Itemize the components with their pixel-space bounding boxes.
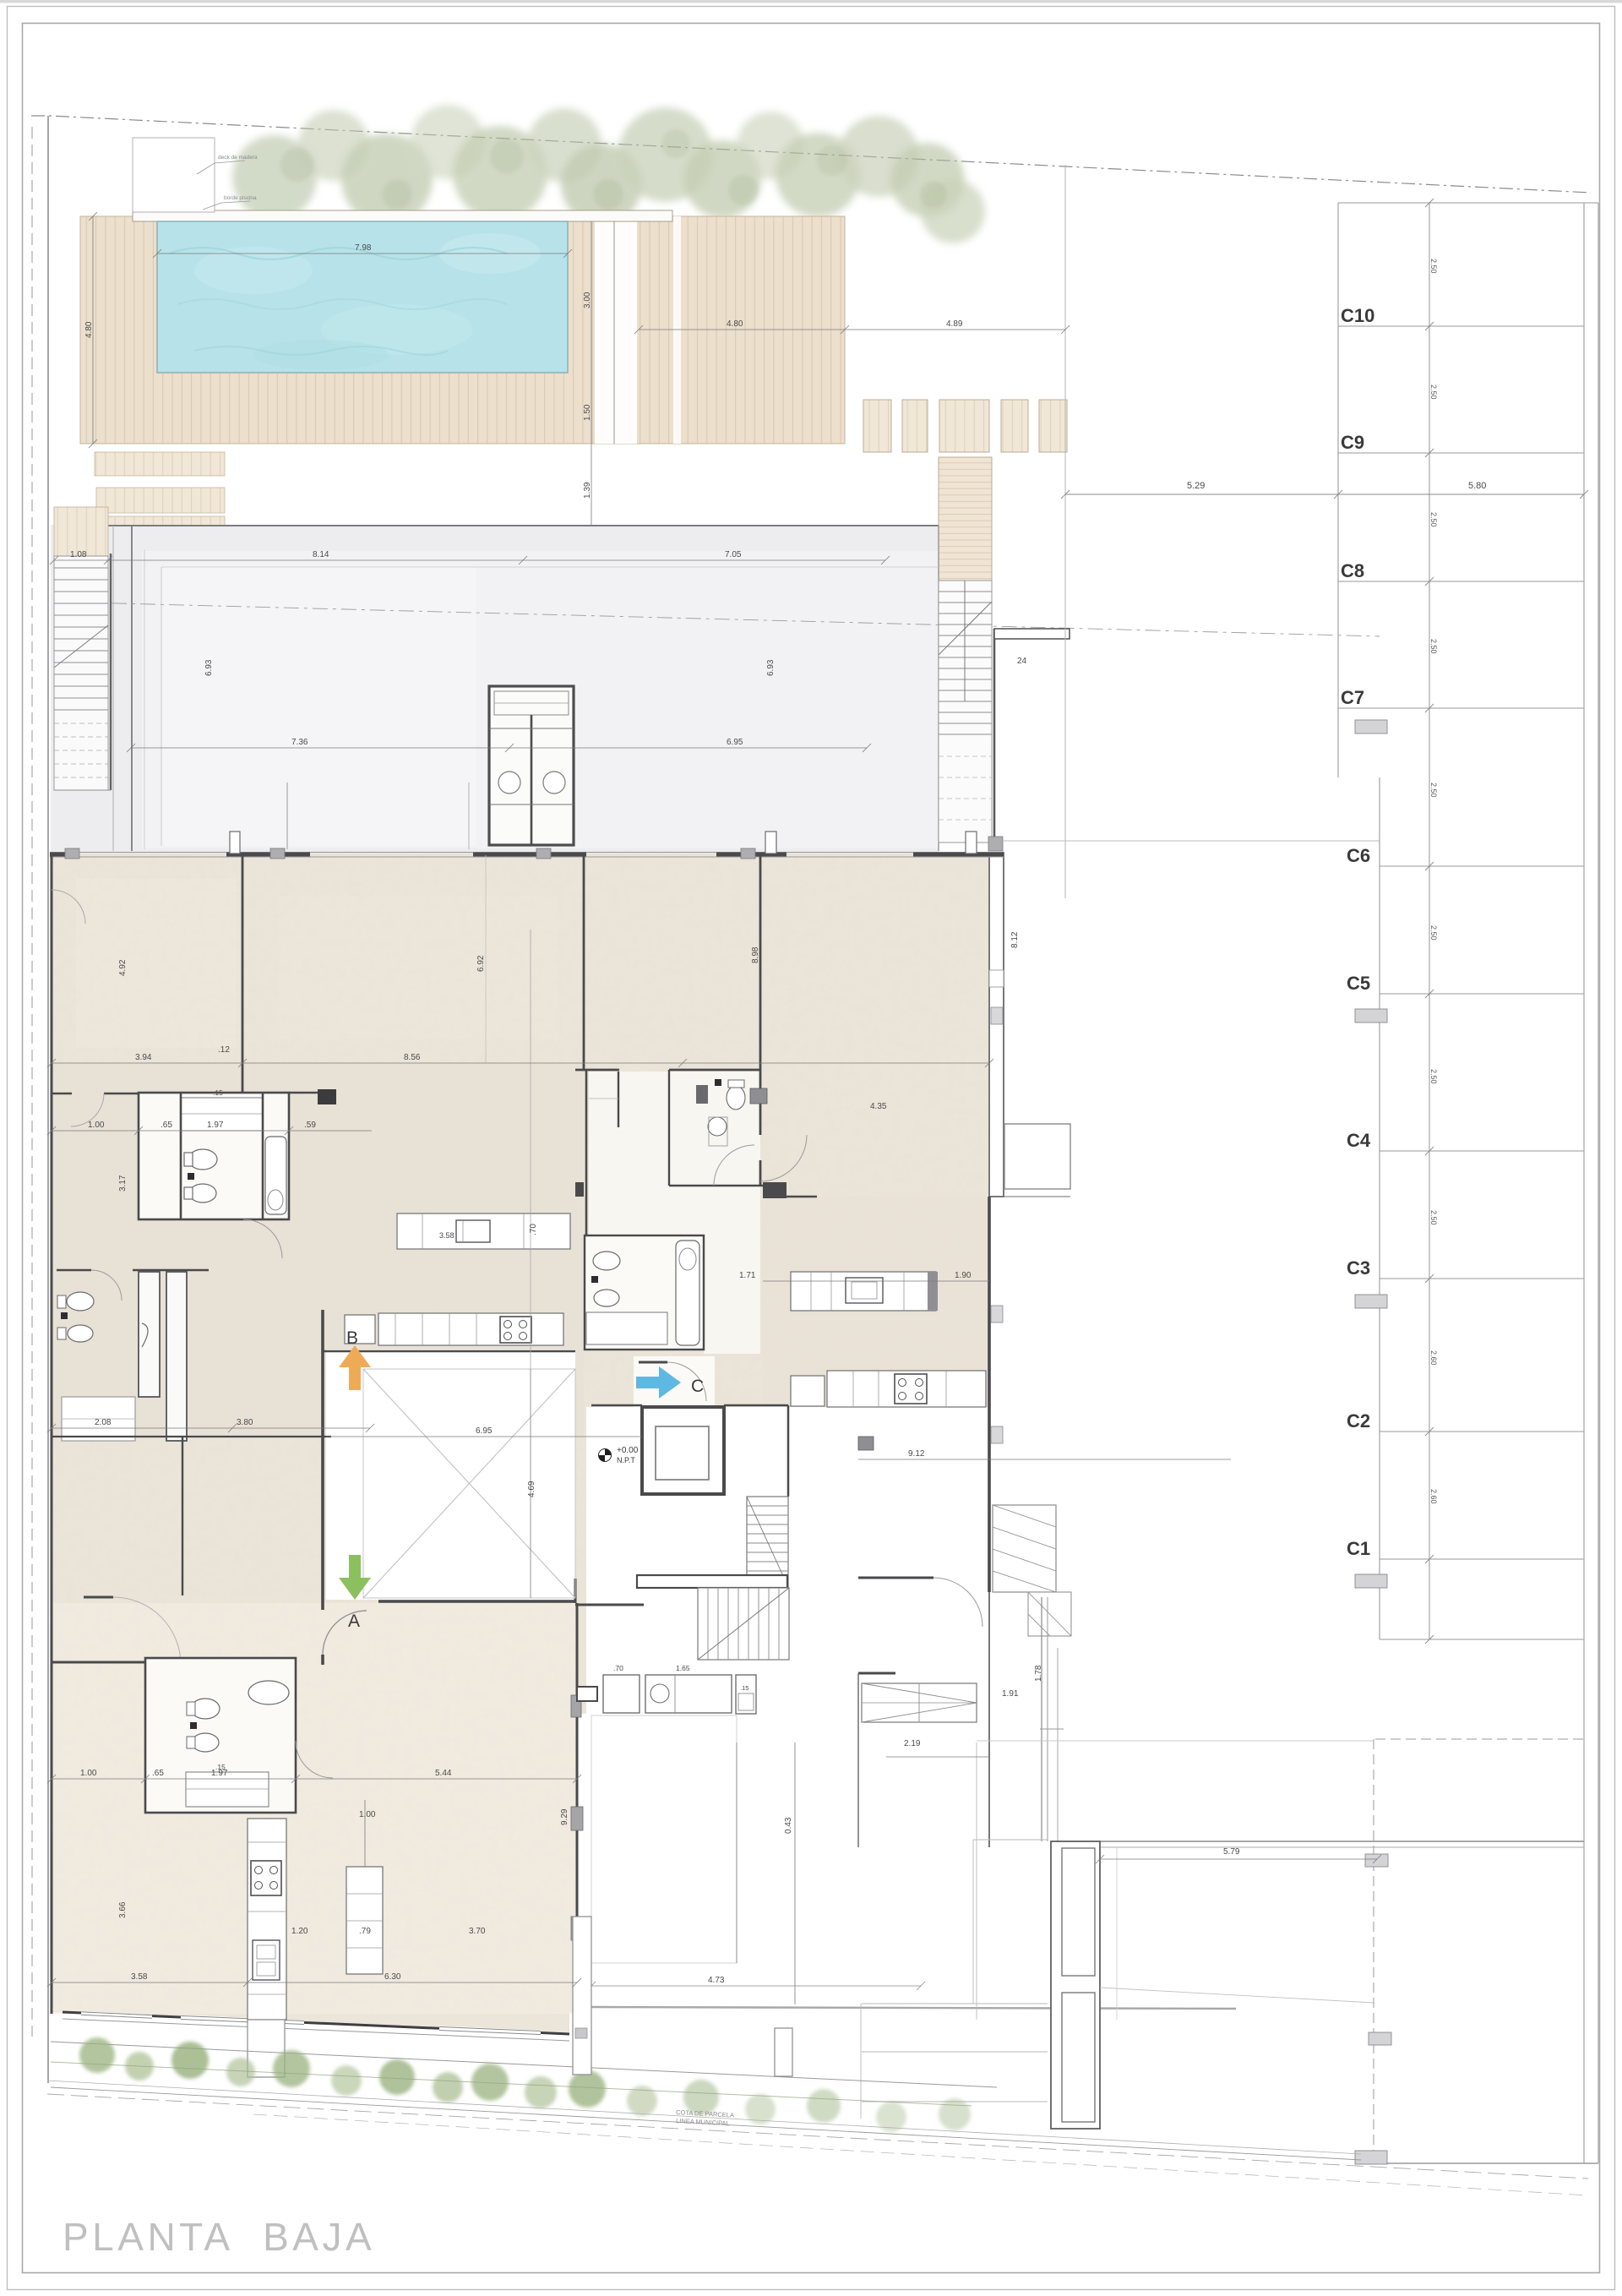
- svg-text:3.00: 3.00: [583, 292, 592, 308]
- svg-text:6.92: 6.92: [476, 955, 486, 972]
- svg-text:8.14: 8.14: [313, 550, 329, 559]
- svg-text:4.89: 4.89: [946, 319, 963, 329]
- svg-text:8.98: 8.98: [751, 946, 760, 963]
- svg-text:PLANTA BAJA: PLANTA BAJA: [63, 2215, 375, 2259]
- svg-text:1.00: 1.00: [359, 1810, 376, 1819]
- svg-text:2.50: 2.50: [1429, 783, 1438, 798]
- svg-text:.59: .59: [304, 1121, 316, 1130]
- svg-text:1.78: 1.78: [1034, 1665, 1043, 1682]
- svg-text:1.00: 1.00: [88, 1121, 105, 1130]
- svg-text:6.30: 6.30: [384, 1972, 401, 1982]
- svg-text:C4: C4: [1347, 1130, 1371, 1151]
- svg-text:C6: C6: [1347, 845, 1370, 866]
- svg-text:4.73: 4.73: [708, 1976, 725, 1985]
- svg-text:1.91: 1.91: [1002, 1689, 1019, 1699]
- svg-text:2.19: 2.19: [904, 1739, 921, 1748]
- svg-text:5.29: 5.29: [1187, 481, 1205, 491]
- svg-text:C10: C10: [1341, 305, 1374, 326]
- svg-text:2.50: 2.50: [1429, 512, 1438, 527]
- svg-text:3.17: 3.17: [118, 1175, 128, 1192]
- svg-text:deck de madera: deck de madera: [218, 155, 258, 161]
- svg-text:A: A: [348, 1612, 360, 1631]
- svg-text:1.20: 1.20: [291, 1927, 308, 1936]
- svg-text:1.00: 1.00: [80, 1769, 97, 1778]
- svg-text:9.12: 9.12: [908, 1449, 925, 1459]
- svg-text:2.50: 2.50: [1429, 1069, 1438, 1084]
- svg-text:0.43: 0.43: [784, 1817, 793, 1834]
- svg-text:4.80: 4.80: [84, 321, 94, 338]
- svg-text:2.60: 2.60: [1429, 1350, 1438, 1366]
- svg-text:7.98: 7.98: [355, 243, 372, 253]
- svg-text:C3: C3: [1347, 1257, 1370, 1279]
- svg-text:.12: .12: [218, 1045, 230, 1055]
- svg-text:3.94: 3.94: [135, 1053, 152, 1062]
- svg-text:6.93: 6.93: [766, 659, 776, 676]
- svg-text:2.50: 2.50: [1429, 925, 1438, 941]
- svg-text:4.69: 4.69: [527, 1481, 536, 1497]
- svg-text:1.08: 1.08: [70, 550, 87, 559]
- svg-text:9.29: 9.29: [560, 1808, 569, 1825]
- svg-text:N.P.T: N.P.T: [617, 1456, 635, 1464]
- svg-text:7.05: 7.05: [725, 550, 742, 559]
- svg-text:C2: C2: [1347, 1410, 1370, 1432]
- svg-text:1.71: 1.71: [739, 1271, 756, 1280]
- svg-text:.70: .70: [613, 1664, 623, 1672]
- svg-text:.15: .15: [740, 1684, 748, 1692]
- svg-text:4.92: 4.92: [118, 959, 128, 976]
- svg-text:C8: C8: [1341, 560, 1364, 581]
- svg-text:1.97: 1.97: [207, 1121, 224, 1130]
- svg-text:5.80: 5.80: [1468, 481, 1486, 491]
- svg-text:C7: C7: [1341, 687, 1364, 708]
- svg-text:1.90: 1.90: [955, 1271, 972, 1280]
- svg-text:1.65: 1.65: [676, 1664, 690, 1672]
- svg-text:2.50: 2.50: [1429, 384, 1438, 400]
- svg-text:6.95: 6.95: [476, 1426, 493, 1436]
- svg-text:6.93: 6.93: [204, 659, 214, 676]
- svg-text:4.35: 4.35: [870, 1102, 887, 1111]
- svg-text:borde piscina: borde piscina: [224, 195, 257, 201]
- svg-text:2.50: 2.50: [1429, 259, 1438, 274]
- svg-text:3.58: 3.58: [131, 1972, 148, 1982]
- svg-text:6.95: 6.95: [727, 738, 743, 747]
- svg-text:3.70: 3.70: [469, 1927, 486, 1936]
- svg-text:1.50: 1.50: [583, 404, 592, 421]
- svg-text:3.80: 3.80: [237, 1418, 253, 1427]
- svg-text:.70: .70: [529, 1224, 538, 1235]
- svg-text:7.36: 7.36: [291, 738, 308, 747]
- svg-text:2.08: 2.08: [95, 1418, 112, 1427]
- svg-text:8.12: 8.12: [1010, 931, 1020, 948]
- svg-text:C5: C5: [1347, 973, 1370, 994]
- svg-text:.15: .15: [213, 1088, 223, 1097]
- svg-text:4.80: 4.80: [727, 319, 743, 329]
- svg-text:5.44: 5.44: [435, 1769, 452, 1778]
- svg-text:1.39: 1.39: [583, 482, 592, 499]
- svg-text:.65: .65: [161, 1121, 172, 1130]
- svg-text:2.50: 2.50: [1429, 639, 1438, 654]
- svg-text:.65: .65: [152, 1769, 164, 1778]
- svg-text:2.60: 2.60: [1429, 1489, 1438, 1504]
- svg-text:.79: .79: [359, 1927, 371, 1936]
- svg-text:C: C: [691, 1377, 704, 1396]
- svg-text:3.58: 3.58: [439, 1231, 454, 1240]
- svg-text:C9: C9: [1341, 432, 1364, 453]
- svg-text:5.79: 5.79: [1223, 1847, 1240, 1857]
- svg-text:1.97: 1.97: [211, 1769, 228, 1778]
- svg-text:3.66: 3.66: [118, 1901, 128, 1918]
- svg-text:C1: C1: [1347, 1538, 1370, 1559]
- svg-text:24: 24: [1017, 657, 1027, 666]
- svg-text:+0.00: +0.00: [617, 1446, 639, 1455]
- svg-text:B: B: [346, 1328, 358, 1348]
- svg-text:8.56: 8.56: [404, 1053, 421, 1062]
- svg-text:2.50: 2.50: [1429, 1210, 1438, 1225]
